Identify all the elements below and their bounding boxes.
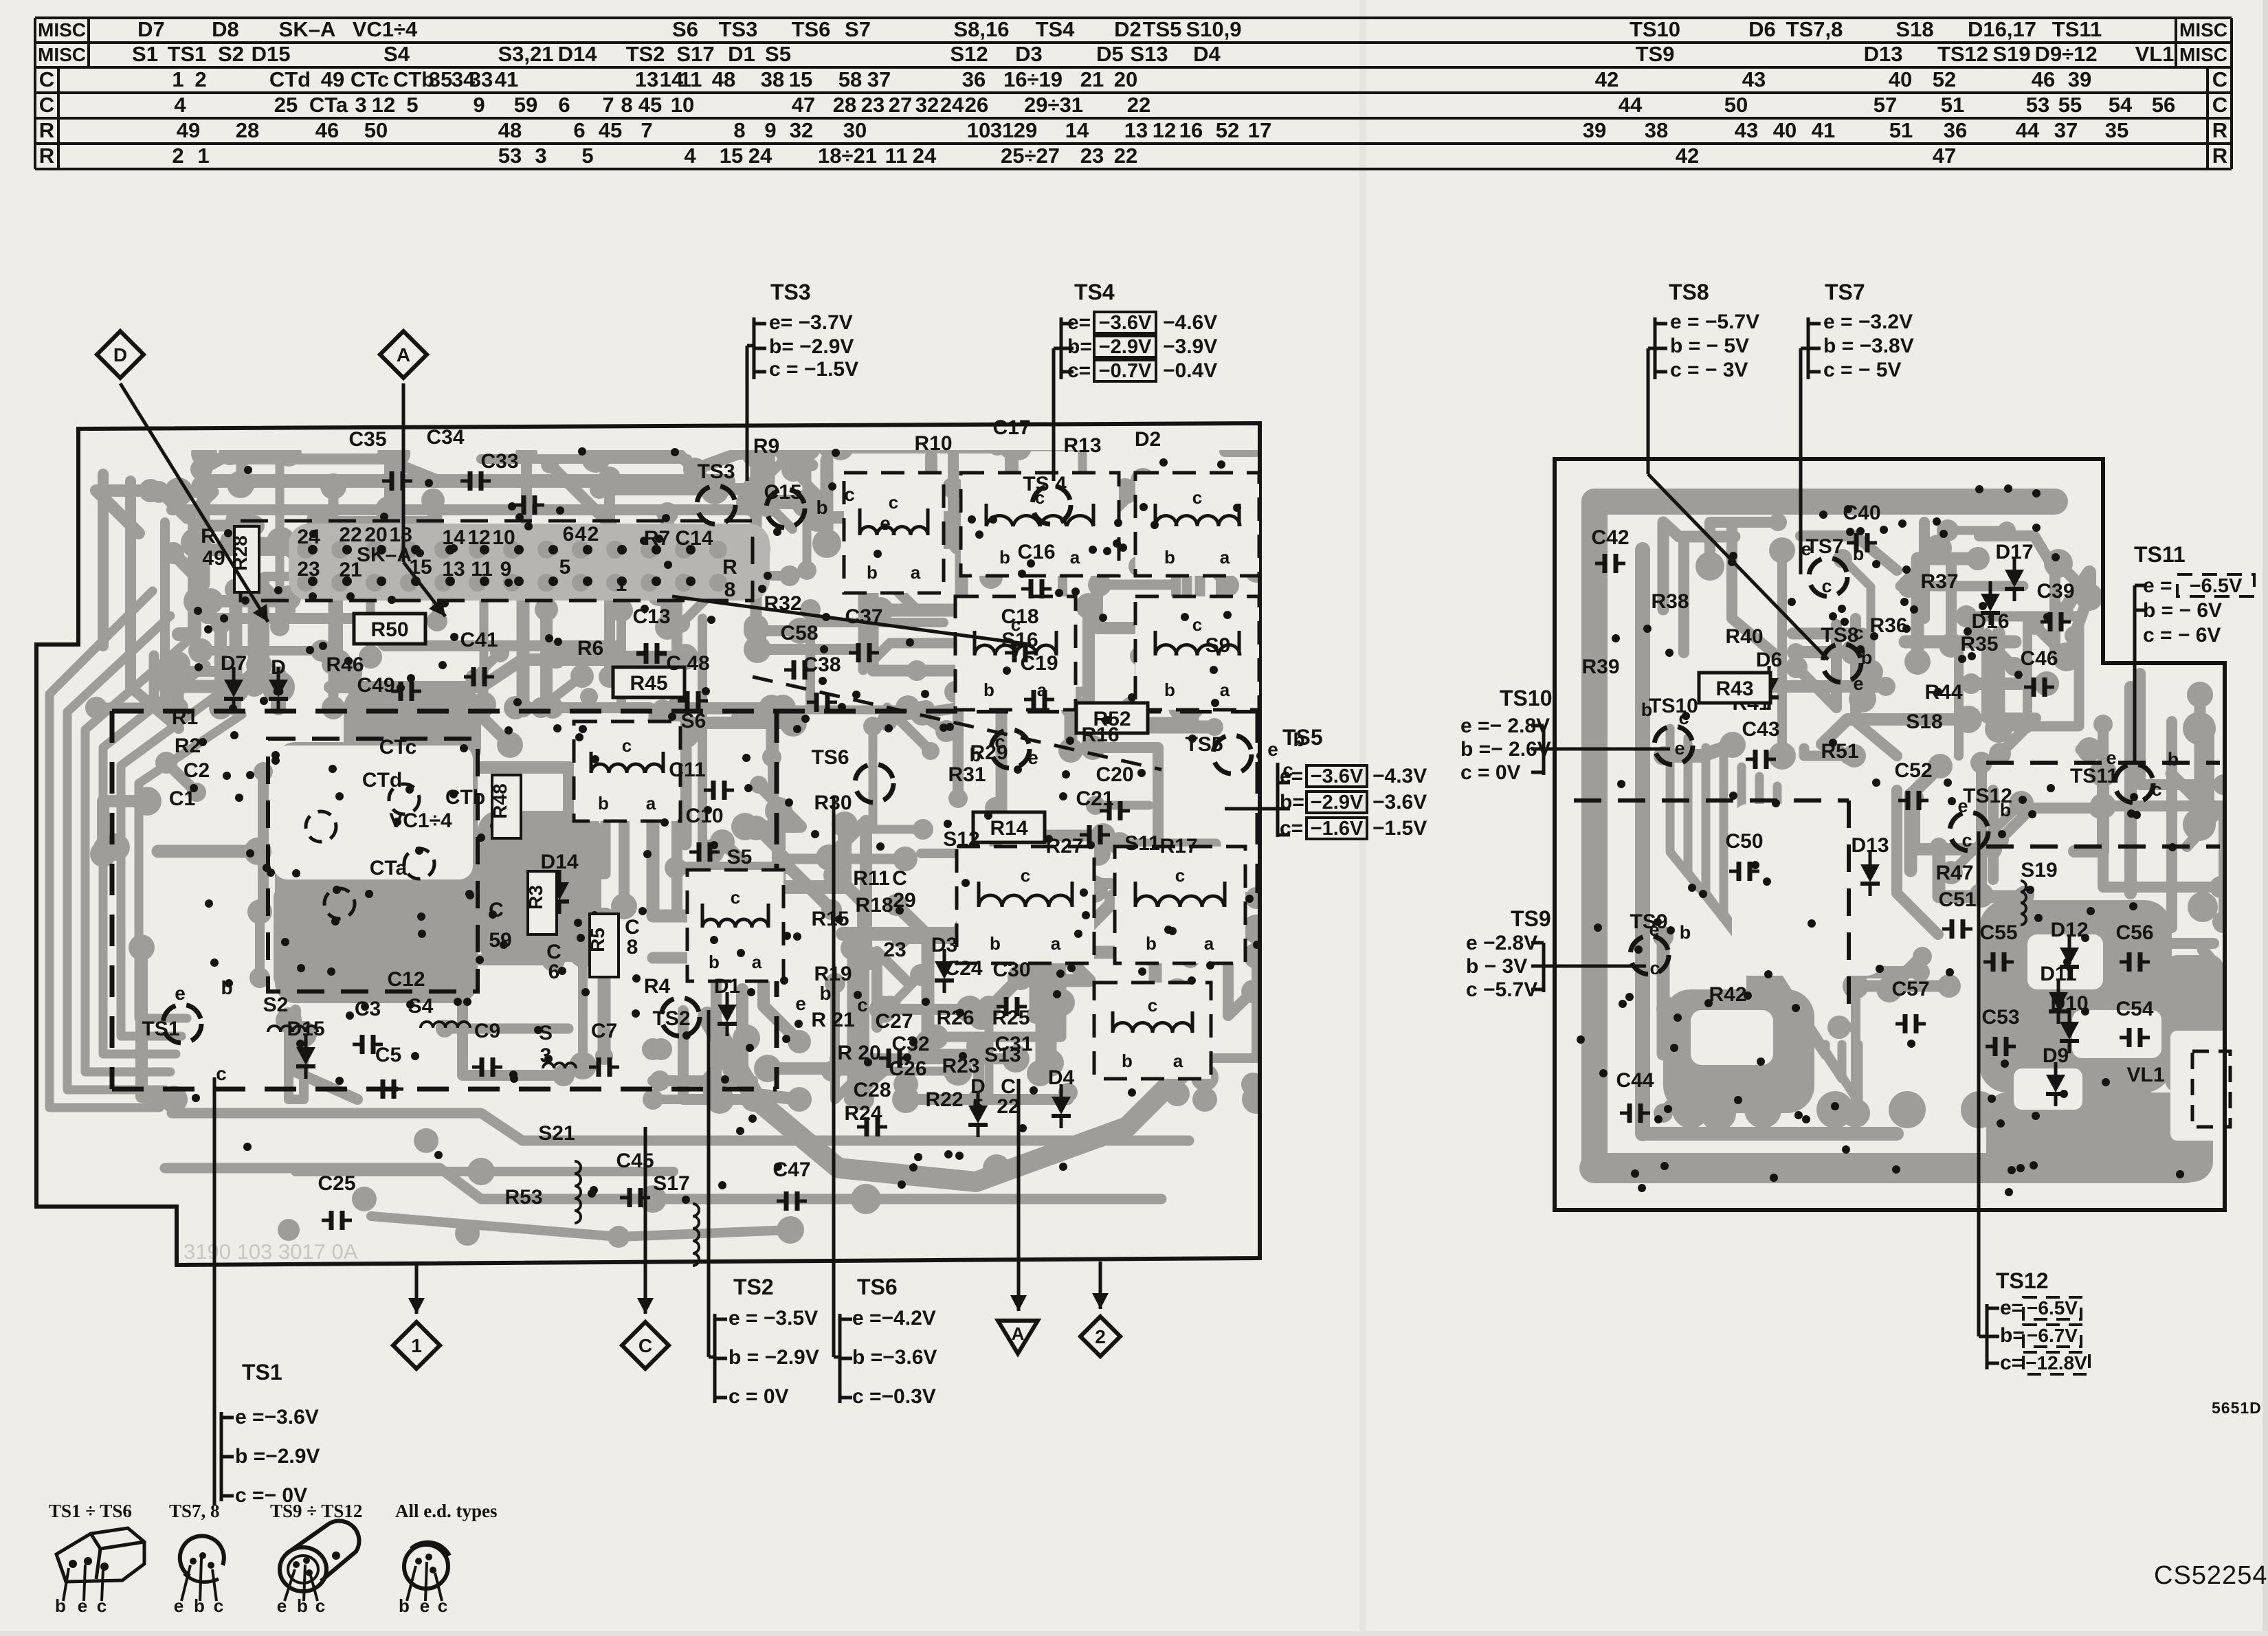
svg-text:−4.6V: −4.6V (1163, 311, 1217, 334)
svg-text:b: b (1641, 699, 1653, 720)
svg-text:27: 27 (889, 93, 912, 117)
svg-text:e =−3.6V: e =−3.6V (235, 1406, 319, 1428)
svg-text:−6.5V: −6.5V (2190, 575, 2243, 597)
svg-text:c: c (214, 1595, 223, 1616)
svg-text:−3.9V: −3.9V (1163, 335, 1217, 358)
svg-text:c = − 3V: c = − 3V (1670, 359, 1748, 381)
svg-text:−3.6V: −3.6V (1372, 791, 1427, 814)
svg-text:D1: D1 (728, 42, 755, 66)
svg-text:D9: D9 (2043, 1044, 2069, 1067)
svg-text:c: c (438, 1595, 447, 1616)
svg-text:4: 4 (575, 523, 587, 546)
svg-text:57: 57 (1874, 93, 1897, 117)
svg-text:5651D: 5651D (2212, 1399, 2262, 1417)
svg-text:48: 48 (712, 67, 735, 91)
svg-text:14: 14 (442, 526, 465, 549)
svg-text:C: C (892, 867, 907, 890)
svg-text:−12.8V: −12.8V (2025, 1352, 2087, 1374)
svg-text:TS1: TS1 (168, 42, 207, 66)
svg-text:41: 41 (495, 67, 518, 91)
svg-text:c = − 6V: c = − 6V (2143, 624, 2221, 647)
svg-text:C51: C51 (1938, 888, 1976, 911)
svg-text:S1: S1 (132, 42, 158, 66)
svg-text:C33: C33 (480, 450, 518, 473)
svg-text:S5: S5 (765, 42, 791, 66)
svg-text:32: 32 (915, 93, 939, 117)
svg-text:R11: R11 (853, 867, 889, 890)
svg-text:D12: D12 (2050, 919, 2088, 941)
svg-text:4: 4 (684, 144, 696, 168)
svg-text:R47: R47 (1935, 862, 1973, 884)
svg-text:35: 35 (2105, 118, 2128, 142)
svg-text:D6: D6 (1756, 649, 1782, 671)
svg-text:S2: S2 (218, 42, 244, 66)
svg-text:S18: S18 (1906, 710, 1942, 733)
svg-text:R2: R2 (175, 735, 201, 757)
svg-text:36: 36 (1944, 118, 1967, 142)
svg-text:a: a (1051, 933, 1061, 954)
svg-text:R15: R15 (811, 908, 849, 930)
svg-text:D6: D6 (1748, 17, 1776, 41)
svg-text:D16,17: D16,17 (1968, 17, 2036, 41)
svg-text:R35: R35 (1960, 633, 1998, 655)
svg-text:R3: R3 (525, 885, 546, 910)
svg-text:4: 4 (174, 93, 186, 117)
svg-text:14: 14 (1065, 118, 1089, 142)
svg-text:R1: R1 (172, 706, 198, 729)
svg-text:S: S (539, 1022, 553, 1044)
svg-text:D7: D7 (221, 652, 247, 675)
svg-text:c=: c= (2000, 1352, 2023, 1374)
svg-text:b = −3.8V: b = −3.8V (1823, 335, 1914, 357)
svg-text:C25: C25 (318, 1172, 355, 1195)
svg-text:CTd: CTd (269, 67, 311, 91)
svg-text:TS8: TS8 (1669, 280, 1709, 304)
svg-text:e = −3.5V: e = −3.5V (729, 1307, 818, 1330)
svg-text:D3: D3 (931, 934, 957, 956)
svg-text:b: b (969, 744, 981, 765)
svg-text:C13: C13 (632, 605, 670, 628)
svg-text:TS10: TS10 (1630, 17, 1680, 41)
svg-text:30: 30 (843, 118, 867, 142)
svg-text:3: 3 (355, 93, 366, 117)
svg-text:VC1÷4: VC1÷4 (389, 809, 452, 832)
svg-text:S5: S5 (727, 846, 753, 869)
svg-text:9: 9 (500, 558, 512, 581)
svg-text:b=: b= (1280, 791, 1304, 814)
svg-text:56: 56 (2152, 93, 2175, 117)
svg-text:47: 47 (792, 93, 815, 117)
svg-text:b: b (2000, 800, 2012, 820)
svg-text:50: 50 (1724, 93, 1748, 117)
svg-text:−0.7V: −0.7V (1099, 360, 1152, 382)
svg-text:−3.6V: −3.6V (1099, 312, 1152, 334)
svg-text:e: e (1801, 539, 1811, 559)
svg-text:D15: D15 (287, 1018, 324, 1040)
svg-text:1: 1 (411, 1335, 422, 1356)
svg-text:MISC: MISC (38, 19, 86, 41)
svg-text:S6: S6 (672, 17, 698, 41)
svg-text:−0.4V: −0.4V (1163, 359, 1217, 382)
svg-text:C27: C27 (875, 1010, 913, 1033)
svg-text:b − 3V: b − 3V (1466, 955, 1527, 978)
svg-text:TS4: TS4 (1036, 17, 1076, 41)
svg-text:49: 49 (321, 67, 344, 91)
svg-text:C38: C38 (803, 653, 841, 676)
svg-text:C24: C24 (944, 957, 982, 980)
svg-text:VC1÷4: VC1÷4 (353, 17, 418, 41)
svg-text:c: c (1821, 576, 1832, 596)
svg-text:2: 2 (588, 523, 599, 546)
svg-text:32: 32 (790, 118, 813, 142)
svg-text:e =: e = (2143, 574, 2172, 597)
svg-text:C: C (2212, 93, 2227, 117)
svg-text:3: 3 (535, 144, 546, 168)
svg-text:8: 8 (627, 936, 638, 959)
svg-text:18÷21: 18÷21 (818, 144, 877, 168)
svg-text:C47: C47 (772, 1158, 810, 1181)
svg-text:e: e (1649, 919, 1659, 940)
svg-text:−2.9V: −2.9V (1311, 792, 1364, 814)
svg-text:37: 37 (2054, 118, 2078, 142)
svg-text:a: a (1204, 933, 1214, 954)
svg-text:TS4: TS4 (1074, 280, 1115, 304)
svg-text:1: 1 (197, 144, 209, 168)
svg-text:SK–A: SK–A (279, 17, 336, 41)
svg-text:c: c (1961, 830, 1972, 851)
svg-text:R27: R27 (1045, 835, 1083, 858)
svg-text:D11: D11 (2040, 963, 2076, 985)
svg-text:c: c (731, 887, 740, 908)
svg-text:R25: R25 (992, 1007, 1030, 1029)
svg-text:−1.5V: −1.5V (1372, 817, 1427, 840)
svg-text:12: 12 (1153, 118, 1176, 142)
svg-text:8: 8 (273, 677, 285, 700)
svg-text:S12: S12 (943, 828, 979, 851)
svg-text:C21: C21 (1076, 787, 1113, 810)
svg-text:CTd: CTd (362, 769, 402, 792)
svg-text:D2: D2 (1114, 17, 1142, 41)
svg-text:37: 37 (867, 67, 891, 91)
svg-text:R14: R14 (990, 817, 1027, 840)
svg-text:8: 8 (724, 579, 736, 601)
svg-text:D9÷12: D9÷12 (2034, 42, 2097, 66)
svg-text:13: 13 (635, 67, 658, 91)
svg-text:c: c (1853, 623, 1863, 643)
svg-text:C58: C58 (780, 622, 818, 645)
svg-text:c −5.7V: c −5.7V (1466, 978, 1537, 1001)
svg-text:R13: R13 (1063, 434, 1101, 457)
svg-text:59: 59 (489, 929, 511, 952)
svg-text:e: e (880, 513, 891, 534)
svg-text:D16: D16 (1971, 610, 2009, 633)
svg-text:C57: C57 (1891, 978, 1929, 1000)
svg-text:c: c (1649, 958, 1660, 978)
svg-text:D10: D10 (2050, 992, 2088, 1015)
svg-text:C52: C52 (1894, 759, 1932, 782)
svg-text:A: A (397, 344, 410, 366)
svg-text:TS2: TS2 (652, 1007, 690, 1030)
svg-text:e: e (1853, 673, 1863, 694)
svg-text:a: a (1070, 547, 1080, 568)
svg-text:47: 47 (1933, 144, 1956, 168)
svg-text:R 20: R 20 (837, 1042, 880, 1064)
svg-text:e: e (1027, 747, 1038, 768)
svg-text:c: c (1175, 865, 1185, 886)
svg-text:S7: S7 (845, 17, 871, 41)
svg-text:C35: C35 (348, 428, 386, 451)
svg-text:VL1: VL1 (2135, 42, 2175, 66)
svg-text:b: b (297, 1595, 308, 1616)
svg-text:6: 6 (563, 523, 575, 546)
svg-text:5: 5 (406, 93, 418, 117)
svg-text:e=: e= (1280, 765, 1303, 787)
svg-text:e=: e= (1067, 311, 1091, 334)
svg-text:46: 46 (2032, 67, 2055, 91)
svg-text:29: 29 (1014, 118, 1037, 142)
svg-text:D7: D7 (137, 17, 165, 41)
svg-text:C1: C1 (169, 787, 195, 810)
svg-text:R45: R45 (630, 672, 667, 695)
svg-text:R23: R23 (942, 1055, 979, 1077)
svg-text:TS6: TS6 (811, 746, 849, 769)
svg-text:D3: D3 (1015, 42, 1043, 66)
svg-text:8: 8 (621, 93, 632, 117)
svg-text:b: b (990, 933, 1001, 954)
svg-text:TS7: TS7 (1805, 535, 1843, 558)
svg-text:R7: R7 (644, 527, 670, 550)
svg-text:TS2: TS2 (626, 42, 665, 66)
svg-text:S13: S13 (984, 1044, 1021, 1066)
svg-text:CTb: CTb (445, 786, 485, 809)
svg-text:e = −5.7V: e = −5.7V (1670, 311, 1759, 333)
svg-text:TS7: TS7 (1825, 280, 1865, 304)
svg-text:TS 4: TS 4 (1023, 473, 1067, 495)
svg-text:a: a (1220, 680, 1230, 700)
svg-text:C: C (39, 93, 54, 117)
svg-text:C32: C32 (891, 1033, 929, 1055)
svg-text:R39: R39 (1581, 655, 1619, 678)
svg-text:S9: S9 (1205, 634, 1231, 657)
svg-text:b: b (1146, 933, 1157, 954)
svg-text:5: 5 (559, 556, 571, 579)
svg-text:b =−3.6V: b =−3.6V (852, 1346, 937, 1369)
svg-text:13: 13 (1124, 118, 1148, 142)
svg-text:C41: C41 (460, 629, 498, 651)
svg-text:C40: C40 (1843, 502, 1880, 524)
svg-text:a: a (1220, 547, 1230, 568)
svg-text:S17: S17 (653, 1172, 689, 1195)
svg-text:b =−2.9V: b =−2.9V (235, 1445, 320, 1468)
svg-text:C: C (489, 899, 504, 921)
svg-text:C53: C53 (1981, 1006, 2019, 1029)
svg-text:52: 52 (1216, 118, 1239, 142)
svg-text:S19: S19 (1992, 42, 2030, 66)
svg-text:a: a (1173, 1051, 1183, 1071)
svg-text:S11: S11 (1124, 832, 1160, 855)
svg-text:20: 20 (1114, 67, 1137, 91)
svg-text:9: 9 (473, 93, 485, 117)
svg-text:C16: C16 (1017, 541, 1055, 563)
svg-text:R5: R5 (587, 928, 608, 952)
svg-text:b = − 5V: b = − 5V (1670, 335, 1749, 357)
svg-text:R36: R36 (1869, 614, 1907, 637)
svg-text:S4: S4 (408, 995, 434, 1018)
svg-text:S16: S16 (1001, 629, 1038, 651)
svg-text:D4: D4 (1048, 1066, 1075, 1089)
svg-text:TS2: TS2 (733, 1275, 774, 1299)
svg-text:c: c (2151, 779, 2161, 800)
svg-text:D17: D17 (1995, 541, 2033, 563)
svg-text:C19: C19 (1020, 652, 1058, 675)
svg-text:28: 28 (833, 93, 856, 117)
svg-text:CS52254: CS52254 (2154, 1561, 2267, 1590)
svg-text:C: C (39, 67, 54, 91)
svg-text:R18: R18 (855, 894, 893, 917)
svg-text:TS1: TS1 (242, 1360, 282, 1385)
svg-text:c: c (994, 731, 1005, 752)
svg-text:TS11: TS11 (2134, 542, 2186, 567)
svg-text:TS3: TS3 (770, 280, 811, 304)
svg-text:C20: C20 (1096, 763, 1133, 786)
svg-text:−6.5V: −6.5V (2027, 1297, 2078, 1319)
svg-text:TS11: TS11 (2052, 17, 2102, 41)
svg-text:50: 50 (364, 118, 388, 142)
svg-text:b=: b= (1067, 335, 1092, 358)
svg-text:C30: C30 (992, 959, 1030, 981)
svg-text:23: 23 (861, 93, 885, 117)
svg-text:39: 39 (1583, 118, 1606, 142)
svg-text:15: 15 (789, 67, 812, 91)
svg-text:R53: R53 (504, 1186, 542, 1209)
svg-text:S12: S12 (950, 42, 988, 66)
svg-text:C5: C5 (375, 1044, 401, 1066)
svg-text:29: 29 (893, 889, 915, 912)
svg-text:D4: D4 (1193, 42, 1221, 66)
svg-text:31: 31 (990, 118, 1014, 142)
svg-text:49: 49 (177, 118, 200, 142)
svg-text:41: 41 (1812, 118, 1835, 142)
svg-text:C14: C14 (675, 527, 713, 550)
svg-text:b: b (816, 497, 827, 518)
svg-text:1: 1 (172, 67, 184, 91)
svg-text:TS9: TS9 (1511, 906, 1551, 931)
svg-text:b= −2.9V: b= −2.9V (769, 335, 854, 358)
svg-text:44: 44 (1619, 93, 1643, 117)
svg-text:43: 43 (1742, 67, 1766, 91)
svg-text:22: 22 (1127, 93, 1150, 117)
svg-text:C49: C49 (357, 674, 394, 697)
svg-text:D13: D13 (1864, 42, 1903, 66)
svg-text:A: A (1012, 1323, 1025, 1344)
svg-text:b: b (1853, 544, 1865, 564)
svg-text:−4.3V: −4.3V (1372, 765, 1427, 787)
svg-text:b: b (1164, 547, 1175, 568)
svg-text:S21: S21 (538, 1122, 575, 1145)
svg-text:12: 12 (467, 526, 490, 549)
svg-text:R10: R10 (914, 432, 952, 455)
svg-text:b: b (1861, 647, 1873, 668)
svg-text:R4: R4 (644, 975, 671, 998)
svg-text:1: 1 (616, 573, 627, 596)
svg-text:TS5: TS5 (1143, 17, 1182, 41)
svg-text:TS10: TS10 (1500, 686, 1552, 710)
svg-text:21: 21 (1080, 67, 1104, 91)
svg-text:10: 10 (967, 118, 990, 142)
svg-text:−2.9V: −2.9V (1099, 336, 1152, 358)
svg-text:c=: c= (1280, 817, 1303, 840)
svg-text:45: 45 (638, 93, 662, 117)
svg-text:MISC: MISC (38, 44, 86, 65)
svg-text:R22: R22 (925, 1088, 963, 1111)
svg-text:36: 36 (962, 67, 986, 91)
svg-text:D: D (113, 344, 127, 366)
svg-text:TS10: TS10 (1649, 695, 1698, 717)
svg-text:c = 0V: c = 0V (729, 1385, 789, 1408)
svg-text:e: e (2106, 748, 2116, 768)
svg-text:53: 53 (498, 144, 522, 168)
svg-text:VL1: VL1 (2126, 1064, 2164, 1086)
svg-text:e= −3.7V: e= −3.7V (769, 311, 853, 334)
svg-text:TS7,8: TS7,8 (1786, 17, 1843, 41)
svg-text:C43: C43 (1742, 718, 1779, 741)
svg-text:46: 46 (315, 118, 339, 142)
svg-text:5: 5 (581, 144, 593, 168)
svg-text:42: 42 (1676, 144, 1699, 168)
svg-text:24: 24 (748, 144, 772, 168)
svg-text:R6: R6 (577, 637, 603, 660)
svg-text:b: b (598, 793, 609, 814)
svg-text:38: 38 (761, 67, 784, 91)
svg-text:CTc: CTc (379, 736, 416, 759)
svg-text:C18: C18 (1001, 605, 1038, 628)
svg-text:R26: R26 (936, 1007, 974, 1029)
svg-text:c: c (1192, 614, 1202, 635)
svg-text:b: b (2168, 749, 2179, 770)
svg-text:C39: C39 (2036, 580, 2074, 603)
svg-text:44: 44 (2016, 118, 2040, 142)
svg-text:23: 23 (1080, 144, 1104, 168)
svg-text:C45: C45 (616, 1150, 654, 1172)
svg-text:c: c (1192, 487, 1202, 508)
svg-text:c =−0.3V: c =−0.3V (852, 1385, 936, 1408)
svg-text:R: R (39, 118, 54, 142)
svg-text:22: 22 (1114, 144, 1137, 168)
svg-text:e: e (174, 1595, 184, 1616)
svg-text:35: 35 (429, 67, 452, 91)
svg-text:e: e (420, 1595, 430, 1616)
svg-text:C11: C11 (669, 759, 705, 781)
svg-text:23: 23 (883, 939, 906, 961)
svg-text:6: 6 (573, 118, 585, 142)
svg-text:e: e (277, 1595, 287, 1616)
svg-text:e: e (1674, 738, 1685, 759)
svg-text:R40: R40 (1725, 625, 1763, 648)
svg-text:53: 53 (2026, 93, 2049, 117)
svg-text:e: e (1267, 739, 1278, 760)
svg-text:48: 48 (498, 118, 522, 142)
svg-text:5: 5 (972, 1095, 984, 1118)
svg-text:b: b (709, 952, 720, 972)
svg-text:58: 58 (838, 67, 862, 91)
svg-text:c=: c= (1067, 359, 1091, 382)
svg-text:D: D (271, 656, 286, 679)
svg-text:2: 2 (172, 144, 184, 168)
svg-text:24: 24 (297, 526, 320, 548)
svg-text:c = − 5V: c = − 5V (1823, 359, 1901, 381)
svg-text:c = 0V: c = 0V (1460, 761, 1521, 784)
svg-text:D14: D14 (558, 42, 598, 66)
